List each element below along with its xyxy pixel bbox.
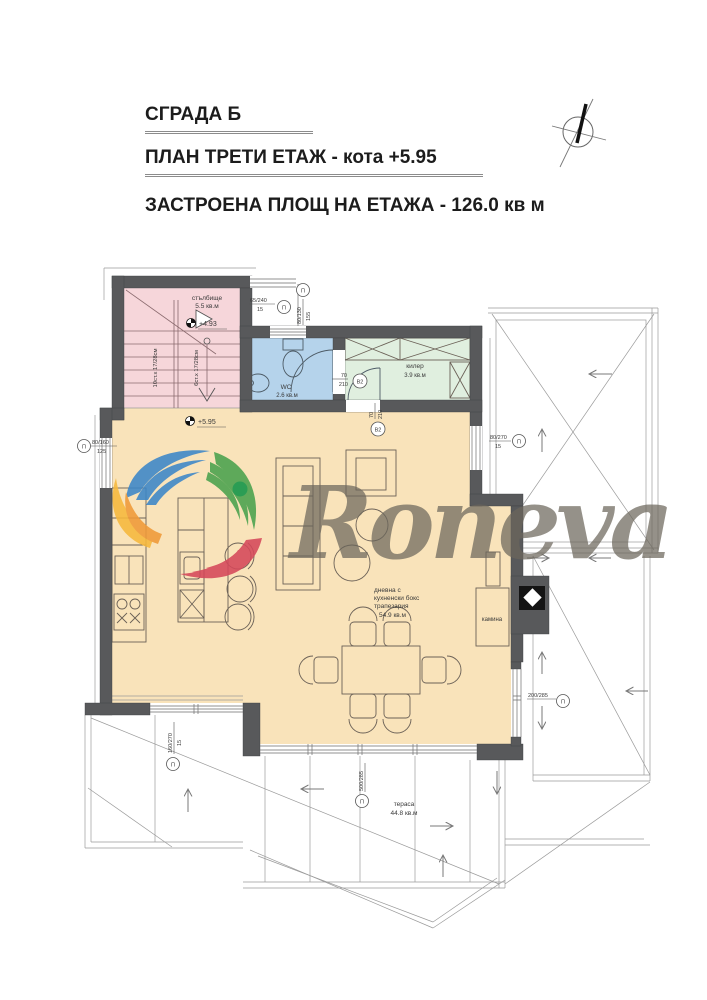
dim-win-left-size: 80/160 bbox=[92, 440, 109, 446]
dim-door-wc-sym: В2 bbox=[357, 380, 364, 386]
dim-win-se-size: 200/285 bbox=[528, 693, 548, 699]
dim-door-pantry-sym: В2 bbox=[375, 428, 382, 434]
dim-win-left-sub: 125 bbox=[97, 449, 106, 455]
floor-plan-page: СГРАДА Б ПЛАН ТРЕТИ ЕТАЖ - кота +5.95 ЗА… bbox=[0, 0, 707, 1000]
stair-room-name: стълбище bbox=[192, 294, 223, 302]
living-room-name-1: дневна с bbox=[374, 587, 401, 594]
pantry-room-name: килер bbox=[406, 363, 424, 370]
dim-win-left-sym: П bbox=[82, 445, 86, 451]
dim-win-south-sym: П bbox=[360, 800, 364, 806]
stair-flight-down-label: 10ст.х 17/28см bbox=[153, 349, 159, 388]
stair-flight-up-label: 6ст.х 17/28см bbox=[194, 350, 200, 386]
dim-win-top-sym: П bbox=[282, 306, 286, 312]
dim-door-wc-w: 70 bbox=[341, 373, 347, 379]
floor-plan-drawing: Roneva стълбище 5.5 кв.м 10ст.х 17/28см … bbox=[0, 0, 707, 1000]
benchmark-icon bbox=[186, 417, 195, 426]
dim-win-wc-size: 80/130 bbox=[297, 307, 303, 324]
benchmark-icon bbox=[187, 319, 196, 328]
dim-win-right-size: 80/270 bbox=[490, 435, 507, 441]
dim-win-sw-size: 160/270 bbox=[168, 733, 174, 753]
wc-room-area: 2.6 кв.м bbox=[276, 393, 298, 399]
logo-script: Roneva bbox=[287, 464, 669, 582]
stair-room-fill bbox=[124, 288, 240, 408]
living-room-area: 54.9 кв.м bbox=[379, 612, 407, 619]
pantry-room-area: 3.9 кв.м bbox=[404, 373, 426, 379]
north-arrow-icon bbox=[552, 99, 606, 167]
fireplace bbox=[519, 586, 545, 610]
living-room-fill-bottom bbox=[255, 703, 477, 744]
dim-win-sw-sub: 15 bbox=[177, 740, 183, 746]
living-room-name-2: кухненски бокс bbox=[374, 594, 420, 602]
wc-room-name: WC bbox=[281, 384, 292, 391]
terrace-name: тераса bbox=[394, 801, 415, 808]
dim-door-pantry-w: 70 bbox=[369, 412, 375, 418]
dim-win-right-sub: 15 bbox=[495, 444, 501, 450]
level-stair-mid: +4.93 bbox=[199, 321, 217, 328]
fireplace-label: камина bbox=[482, 617, 503, 623]
dim-win-right-sym: П bbox=[517, 440, 521, 446]
dim-win-se-sym: П bbox=[561, 700, 565, 706]
dim-door-pantry-h: 210 bbox=[378, 410, 384, 419]
dim-win-top-size: 65/240 bbox=[250, 298, 267, 304]
dim-win-sw-sym: П bbox=[171, 763, 175, 769]
dim-door-wc-h: 210 bbox=[339, 382, 348, 388]
level-floor: +5.95 bbox=[198, 419, 216, 426]
dim-win-south-size: 500/285 bbox=[359, 771, 365, 791]
dim-win-wc-sym: П bbox=[301, 289, 305, 295]
living-room-name-3: трапезария bbox=[374, 603, 409, 610]
logo-dot bbox=[233, 482, 248, 497]
stair-room-area: 5.5 кв.м bbox=[195, 303, 219, 310]
terrace-area: 44.8 кв.м bbox=[390, 810, 418, 817]
dim-win-wc-sub: 155 bbox=[306, 312, 312, 321]
dim-win-top-sub: 15 bbox=[257, 307, 263, 313]
